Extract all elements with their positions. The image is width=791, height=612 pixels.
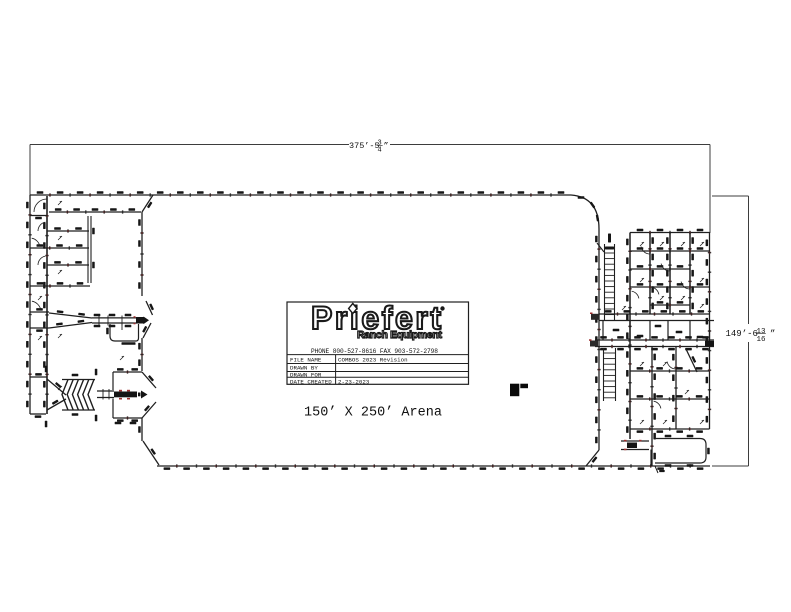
svg-text:13: 13 — [757, 328, 767, 336]
svg-text:4: 4 — [378, 147, 382, 155]
svg-text:”: ” — [770, 329, 775, 339]
svg-text:DRAWN FOR: DRAWN FOR — [290, 371, 322, 378]
svg-text:COMBOS 2023 Revision: COMBOS 2023 Revision — [338, 357, 408, 364]
svg-text:150’ X 250’ Arena: 150’ X 250’ Arena — [304, 406, 442, 421]
svg-text:16: 16 — [757, 336, 767, 344]
svg-text:DATE CREATED: DATE CREATED — [290, 378, 332, 385]
svg-text:PHONE 800-527-8616 FAX 903-57: PHONE 800-527-8616 FAX 903-572-2798 — [311, 348, 438, 355]
svg-text:FILE NAME: FILE NAME — [290, 357, 322, 364]
svg-text:375’-5: 375’-5 — [349, 141, 380, 151]
svg-text:149’-6: 149’-6 — [726, 329, 758, 339]
svg-text:”: ” — [384, 141, 389, 151]
svg-text:2-23-2023: 2-23-2023 — [338, 378, 370, 385]
svg-text:Ranch Equipment: Ranch Equipment — [357, 329, 443, 341]
